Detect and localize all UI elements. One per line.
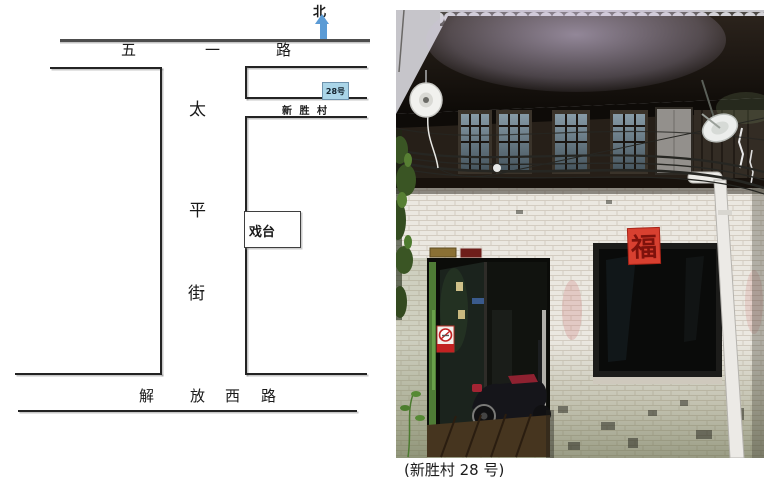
- brick-top-course: [396, 188, 764, 194]
- stage-box: 戏台: [244, 211, 301, 248]
- window-panel: [610, 110, 648, 174]
- fu-paper: 福: [627, 227, 660, 264]
- pink-smudge: [562, 280, 582, 340]
- xinsheng-village-label: 新 胜 村: [282, 102, 329, 117]
- left-block-bottom-line: [15, 373, 162, 375]
- window-sill: [593, 377, 722, 384]
- upper-right-block-top-line: [245, 66, 367, 68]
- wuyi-road-char: 五: [121, 43, 136, 58]
- fu-character: 福: [630, 233, 658, 264]
- wuyi-road-char: 一: [205, 43, 220, 58]
- upper-right-block-left-line: [245, 66, 247, 99]
- shop-window: [593, 243, 722, 384]
- left-block-top-line: [50, 67, 162, 69]
- doorway: [427, 248, 551, 457]
- lower-right-block-bottom-line: [245, 373, 367, 375]
- jiefang-road-char: 解: [139, 389, 154, 404]
- taiping-street-char: 太: [189, 102, 206, 119]
- lower-right-block-top-line: [245, 116, 367, 118]
- jiefang-road-char: 西: [225, 389, 240, 404]
- jiefang-road-line: [18, 410, 357, 412]
- document-page: 北 五 一 路 太 平 街 28号 新 胜 村 戏台 解 放 西 路: [0, 0, 764, 486]
- sticker-blue: [472, 298, 484, 304]
- no-smoking-sign: [437, 326, 454, 352]
- right-shadow-column: [752, 188, 764, 458]
- taiping-street-char: 平: [189, 203, 206, 220]
- photo-caption: (新胜村 28 号): [404, 459, 504, 480]
- left-block-right-line: [160, 67, 162, 375]
- building-photo: 福: [396, 10, 764, 458]
- door-plaque-gold: [430, 248, 456, 257]
- wuyi-road-char: 路: [276, 43, 291, 58]
- jiefang-road-char: 放: [190, 389, 205, 404]
- sticker: [458, 310, 465, 319]
- jiefang-road-char: 路: [261, 389, 276, 404]
- north-arrow-stem: [320, 23, 327, 40]
- door-plaque-red: [460, 248, 482, 258]
- taiping-street-char: 街: [188, 286, 205, 303]
- house-28-marker: 28号: [322, 82, 349, 100]
- sticker: [456, 282, 463, 291]
- wire-insulator: [493, 164, 501, 172]
- corner-stain: [546, 410, 554, 458]
- green-frame-highlight: [432, 310, 435, 390]
